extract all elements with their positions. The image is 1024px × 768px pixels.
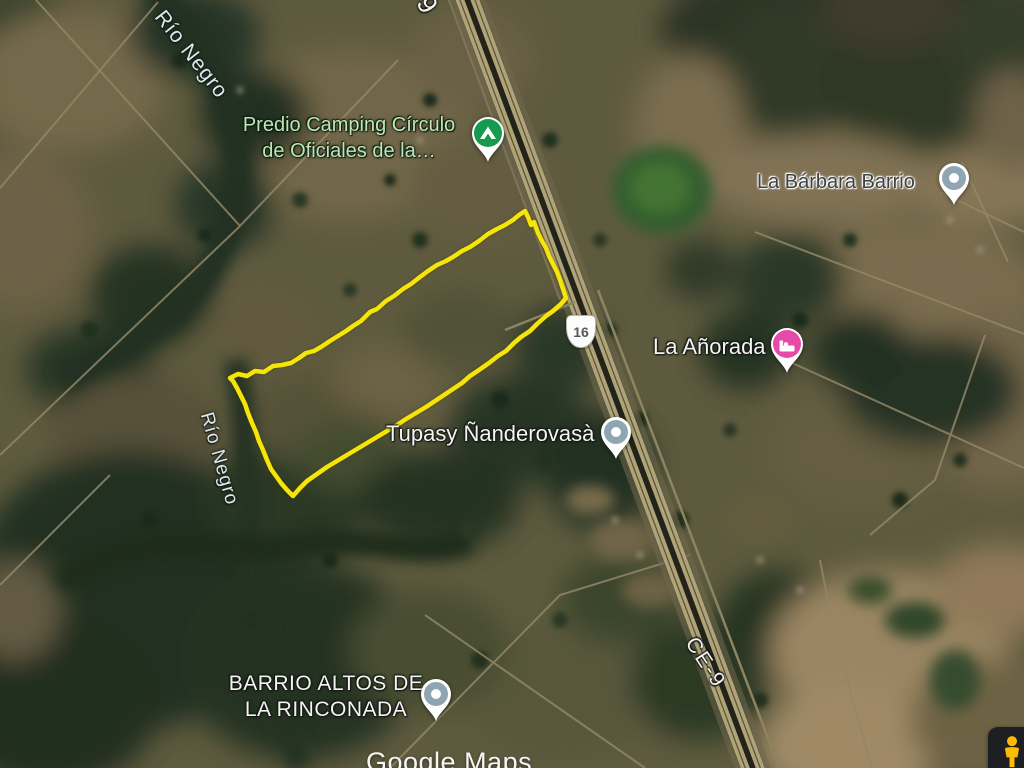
barbara-pin[interactable] <box>937 162 971 211</box>
pegman-control[interactable] <box>988 727 1024 768</box>
campground-pin[interactable] <box>470 117 506 168</box>
barrio-altos-pin[interactable] <box>419 678 453 727</box>
poi-label-anorada[interactable]: La Añorada <box>653 334 766 360</box>
poi-label-tupasy[interactable]: Tupasy Ñanderovasà <box>386 421 594 447</box>
satellite-imagery <box>0 0 1024 768</box>
poi-label-barrio-altos-line1: BARRIO ALTOS DE <box>228 671 424 697</box>
tupasy-pin[interactable] <box>599 416 633 465</box>
poi-label-barrio-altos[interactable]: BARRIO ALTOS DE LA RINCONADA <box>228 671 424 723</box>
campground-icon <box>470 117 506 163</box>
anorada-pin[interactable] <box>769 328 805 379</box>
poi-label-camping-line1: Predio Camping Círculo <box>225 112 473 138</box>
route-16-shield-number: 16 <box>573 324 589 340</box>
pegman-icon <box>999 735 1024 768</box>
google-maps-watermark[interactable]: Google Maps <box>366 747 532 768</box>
place-pin-icon <box>419 678 453 722</box>
hotel-pin-icon <box>769 328 805 374</box>
poi-label-camping[interactable]: Predio Camping Círculo de Oficiales de l… <box>225 112 473 164</box>
place-pin-icon <box>937 162 971 206</box>
poi-label-barrio-altos-line2: LA RINCONADA <box>228 697 424 723</box>
map-canvas[interactable]: Río Negro Río Negro Predio Camping Círcu… <box>0 0 1024 768</box>
place-pin-icon <box>599 416 633 460</box>
poi-label-camping-line2: de Oficiales de la… <box>225 138 473 164</box>
poi-label-barbara[interactable]: La Bárbara Barrio <box>757 171 915 194</box>
